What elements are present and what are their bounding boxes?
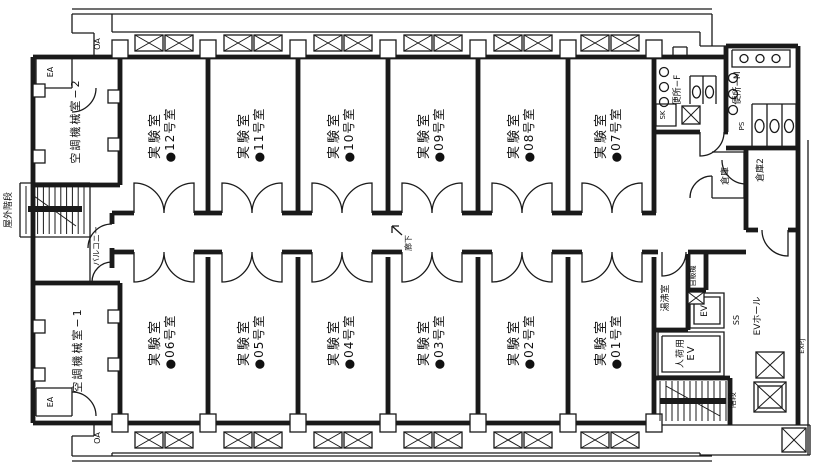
label-freight-elevator: 人荷用EV [676,333,698,373]
thin-lines [20,9,810,461]
room-label-08: 実験室●08号室 [508,89,537,181]
label-storage: 倉庫 [721,163,731,189]
label-mech-room-1: 空調機械室−1 [72,285,85,415]
label-corridor: 廊下 [404,232,413,254]
label-expansion-joint: EXP.J [799,330,806,362]
label-toilet-f: 便所−F [673,65,683,115]
label-vending-machine: 自販機 [689,261,697,291]
label-sk: SK [659,106,667,124]
label-ea-bottom: EA [46,392,55,412]
room-label-04: 実験室●04号室 [328,296,357,388]
label-elevator-hall: EVホール [753,288,763,344]
room-label-02: 実験室●02号室 [508,296,537,388]
label-balcony: バルコニー [92,213,101,279]
room-label-10: 実験室●10号室 [328,89,357,181]
label-mech-room-2: 空調機械室−2 [70,56,83,186]
label-outdoor-stairs: 屋外階段 [4,178,14,242]
label-staircase: 階段 [728,386,737,414]
room-label-11: 実験室●11号室 [238,89,267,181]
room-label-07: 実験室●07号室 [595,89,624,181]
label-storage-2: 倉庫2 [756,151,766,189]
room-label-01: 実験室●01号室 [595,296,624,388]
room-label-05: 実験室●05号室 [238,296,267,388]
label-oa-bottom: OA [93,427,102,449]
room-label-09: 実験室●09号室 [418,89,447,181]
label-toilet-m: 便所−M [733,63,743,113]
label-elevator: EV [700,300,710,322]
label-hot-water-room: 湯沸室 [661,278,671,318]
label-ps: PS [738,117,746,135]
floorplan-page: 実験室●12号室 実験室●11号室 実験室●10号室 実験室●09号室 実験室●… [0,0,825,469]
label-ss: SS [732,310,741,330]
room-label-12: 実験室●12号室 [149,89,178,181]
room-label-06: 実験室●06号室 [149,296,178,388]
room-label-03: 実験室●03号室 [418,296,447,388]
label-ea-top: EA [46,62,55,82]
label-oa-top: OA [93,33,102,55]
